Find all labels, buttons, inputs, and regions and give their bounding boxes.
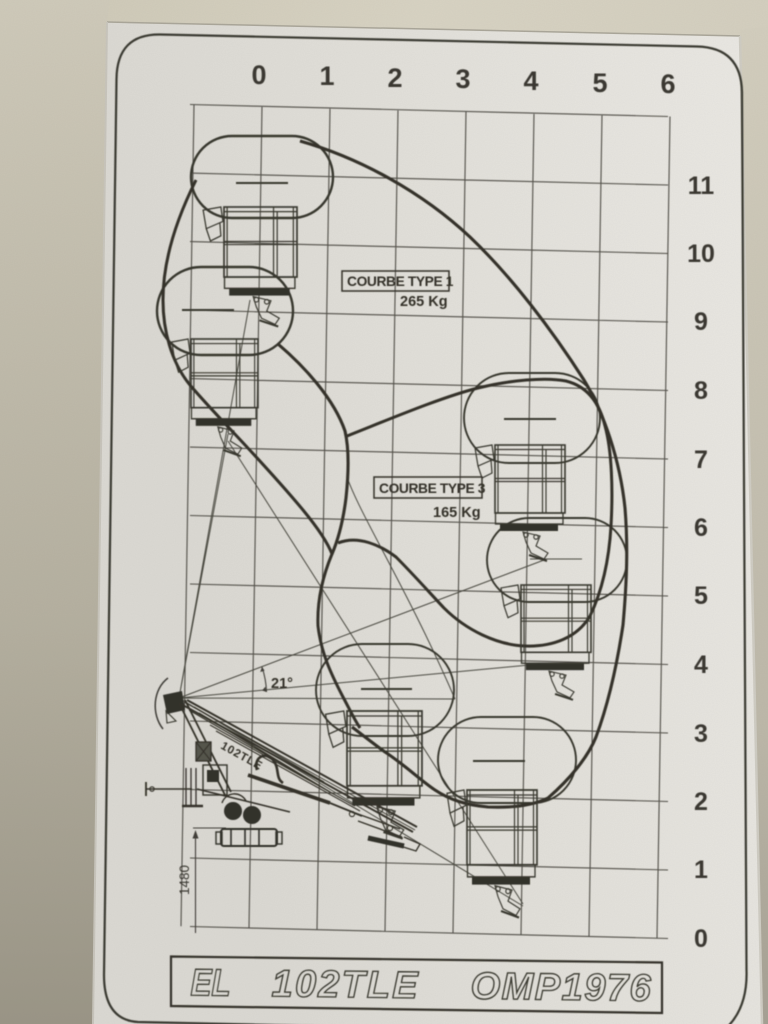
svg-text:8: 8 — [694, 377, 708, 405]
svg-text:COURBE TYPE 1: COURBE TYPE 1 — [347, 274, 454, 289]
svg-text:1: 1 — [694, 856, 708, 884]
svg-text:7: 7 — [694, 446, 708, 474]
svg-text:265 Kg: 265 Kg — [400, 294, 448, 310]
svg-text:21°: 21° — [271, 676, 293, 692]
svg-text:2: 2 — [694, 788, 708, 816]
svg-text:6: 6 — [660, 69, 675, 99]
svg-text:165 Kg: 165 Kg — [433, 505, 481, 521]
svg-text:COURBE TYPE 3: COURBE TYPE 3 — [379, 481, 486, 496]
svg-text:4: 4 — [694, 651, 708, 679]
svg-text:3: 3 — [455, 64, 470, 94]
svg-text:3: 3 — [694, 720, 708, 748]
svg-text:0: 0 — [251, 60, 266, 90]
svg-text:5: 5 — [694, 582, 708, 610]
svg-text:OMP1976: OMP1976 — [470, 966, 651, 1010]
svg-text:10: 10 — [687, 240, 715, 268]
svg-text:1480: 1480 — [177, 865, 192, 895]
svg-text:5: 5 — [592, 68, 607, 98]
svg-text:11: 11 — [688, 172, 715, 200]
svg-text:6: 6 — [694, 514, 708, 542]
svg-text:9: 9 — [694, 308, 708, 336]
svg-text:2: 2 — [387, 63, 402, 93]
svg-text:0: 0 — [694, 925, 708, 953]
svg-text:EL: EL — [190, 962, 231, 1004]
svg-text:1: 1 — [319, 61, 334, 91]
svg-text:4: 4 — [523, 66, 538, 96]
